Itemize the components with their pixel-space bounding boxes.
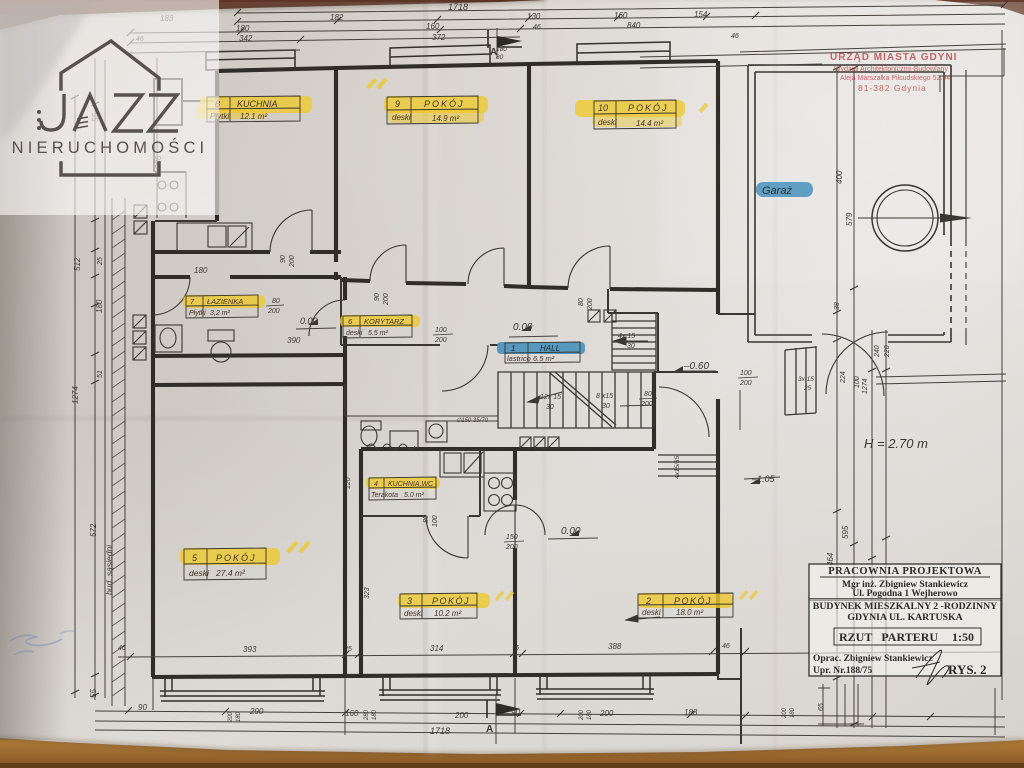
svg-text:100: 100 xyxy=(435,327,447,334)
svg-text:1718: 1718 xyxy=(430,726,450,736)
svg-text:deski: deski xyxy=(642,608,661,617)
svg-text:180: 180 xyxy=(194,266,208,275)
svg-text:30: 30 xyxy=(627,343,635,350)
svg-text:1:50: 1:50 xyxy=(952,630,974,644)
svg-text:KORYTARZ: KORYTARZ xyxy=(364,317,404,326)
svg-text:NIERUCHOMOŚCI: NIERUCHOMOŚCI xyxy=(12,138,209,157)
svg-text:14.4 m²: 14.4 m² xyxy=(636,119,663,128)
svg-text:240: 240 xyxy=(874,345,881,358)
svg-text:200: 200 xyxy=(383,293,390,306)
svg-text:4: 4 xyxy=(374,481,378,488)
svg-text:deski: deski xyxy=(189,568,210,578)
svg-text:12.1 m²: 12.1 m² xyxy=(240,112,267,121)
svg-text:Wydział Architektoniczno-Budow: Wydział Architektoniczno-Budowlany xyxy=(834,66,948,73)
svg-text:Płytki: Płytki xyxy=(189,310,206,317)
svg-text:KUCHNIA: KUCHNIA xyxy=(237,99,278,109)
svg-text:1718: 1718 xyxy=(448,2,468,12)
svg-text:200: 200 xyxy=(505,544,518,551)
svg-text:323: 323 xyxy=(364,587,371,599)
svg-text:150: 150 xyxy=(506,534,518,541)
svg-text:595: 595 xyxy=(841,525,850,539)
svg-text:81-382 Gdynia: 81-382 Gdynia xyxy=(858,83,927,93)
svg-text:deski: deski xyxy=(404,609,423,618)
svg-text:130: 130 xyxy=(527,12,541,21)
svg-text:180: 180 xyxy=(496,46,507,53)
svg-text:180: 180 xyxy=(236,24,250,33)
svg-text:1274: 1274 xyxy=(71,386,80,404)
svg-text:390: 390 xyxy=(287,336,301,345)
svg-text:372: 372 xyxy=(432,33,446,42)
svg-text:Ul. Pogodna 1 Wejherowo: Ul. Pogodna 1 Wejherowo xyxy=(852,589,957,599)
svg-text:393: 393 xyxy=(243,645,257,654)
svg-text:200: 200 xyxy=(289,255,296,268)
svg-text:–0.60: –0.60 xyxy=(683,361,709,372)
svg-text:POKÓJ: POKÓJ xyxy=(628,103,669,113)
svg-text:ŁAZIENKA: ŁAZIENKA xyxy=(207,297,243,306)
svg-text:290: 290 xyxy=(249,707,264,716)
svg-text:46: 46 xyxy=(118,645,126,652)
svg-text:Garaż: Garaż xyxy=(762,185,792,197)
svg-text:18.0 m²: 18.0 m² xyxy=(676,608,703,617)
svg-text:100: 100 xyxy=(854,376,861,388)
svg-text:840: 840 xyxy=(627,21,641,30)
svg-text:PRACOWNIA PROJEKTOWA: PRACOWNIA PROJEKTOWA xyxy=(828,566,982,577)
svg-text:200: 200 xyxy=(267,308,280,315)
svg-text:8 x15: 8 x15 xyxy=(596,393,613,400)
svg-text:A: A xyxy=(486,724,493,735)
svg-text:POKÓJ: POKÓJ xyxy=(674,596,712,606)
svg-text:BUDYNEK MIESZKALNY 2 -RODZINNY: BUDYNEK MIESZKALNY 2 -RODZINNY xyxy=(813,601,997,612)
svg-text:5.5 m²: 5.5 m² xyxy=(368,330,389,337)
svg-text:10: 10 xyxy=(598,103,608,113)
svg-text:80: 80 xyxy=(578,298,585,306)
svg-text:POKÓJ: POKÓJ xyxy=(424,99,465,109)
svg-text:80: 80 xyxy=(496,54,504,61)
svg-text:38: 38 xyxy=(834,302,841,310)
svg-text:HALL: HALL xyxy=(540,344,560,353)
svg-text:10.2 m²: 10.2 m² xyxy=(434,609,461,618)
svg-text:deski: deski xyxy=(346,330,363,337)
svg-text:200: 200 xyxy=(739,380,752,387)
svg-text:90: 90 xyxy=(511,708,520,717)
svg-text:46: 46 xyxy=(731,33,739,40)
svg-text:0.00: 0.00 xyxy=(513,322,533,333)
svg-text:30: 30 xyxy=(546,404,554,411)
svg-text:100: 100 xyxy=(432,515,439,527)
svg-text:160: 160 xyxy=(426,22,440,31)
svg-text:46: 46 xyxy=(533,24,541,31)
svg-text:0.00: 0.00 xyxy=(561,526,581,537)
svg-text:bud. sąsiedni: bud. sąsiedni xyxy=(104,544,114,595)
svg-text:lastrico: lastrico xyxy=(507,354,531,363)
svg-text:400: 400 xyxy=(835,170,844,184)
svg-text:180: 180 xyxy=(587,709,593,720)
svg-text:90: 90 xyxy=(138,703,147,712)
svg-text:65: 65 xyxy=(818,703,825,711)
svg-text:120: 120 xyxy=(345,477,352,489)
svg-text:30: 30 xyxy=(602,403,610,410)
svg-text:0.00: 0.00 xyxy=(300,316,318,326)
svg-text:deski: deski xyxy=(392,113,411,122)
svg-text:Oprac. Zbigniew Stankiewicz: Oprac. Zbigniew Stankiewicz xyxy=(813,654,933,664)
svg-text:4x15/35: 4x15/35 xyxy=(674,455,681,479)
svg-text:Aleja Marszałka Piłsudskiego 5: Aleja Marszałka Piłsudskiego 52.54 xyxy=(840,75,950,82)
svg-text:182: 182 xyxy=(330,13,344,22)
svg-text:9: 9 xyxy=(395,99,400,109)
svg-text:80: 80 xyxy=(423,515,430,523)
svg-text:200: 200 xyxy=(434,337,447,344)
svg-text:388: 388 xyxy=(608,642,622,651)
svg-text:12x 15: 12x 15 xyxy=(540,394,561,401)
svg-text:RYS. 2: RYS. 2 xyxy=(948,662,987,677)
svg-text:80: 80 xyxy=(272,298,280,305)
svg-text:90: 90 xyxy=(374,293,381,301)
svg-text:Terakota: Terakota xyxy=(371,492,398,499)
svg-text:90: 90 xyxy=(280,255,287,263)
svg-text:4x 15: 4x 15 xyxy=(618,333,635,340)
svg-text:46: 46 xyxy=(722,643,730,650)
svg-text:572: 572 xyxy=(89,523,98,537)
svg-text:3,2 m²: 3,2 m² xyxy=(210,310,231,317)
svg-text:1274: 1274 xyxy=(862,378,869,394)
svg-text:RZUT PARTERU: RZUT PARTERU xyxy=(839,630,938,644)
svg-text:51: 51 xyxy=(97,370,104,378)
svg-text:2: 2 xyxy=(645,596,651,606)
svg-text:180: 180 xyxy=(236,711,242,722)
svg-text:–1.05: –1.05 xyxy=(751,474,776,484)
svg-text:180: 180 xyxy=(372,709,378,720)
svg-text:280: 280 xyxy=(364,709,370,721)
svg-text:3x 15: 3x 15 xyxy=(798,376,814,383)
svg-text:POKÓJ: POKÓJ xyxy=(216,553,257,563)
svg-text:512: 512 xyxy=(73,257,82,271)
svg-text:deski: deski xyxy=(598,118,617,127)
svg-text:55: 55 xyxy=(89,689,98,698)
svg-text:1: 1 xyxy=(511,344,515,353)
svg-text:314: 314 xyxy=(430,644,444,653)
svg-text:14.9 m²: 14.9 m² xyxy=(432,114,459,123)
svg-text:224: 224 xyxy=(840,371,847,384)
svg-text:579: 579 xyxy=(845,212,854,226)
svg-text:Upr. Nr.188/75: Upr. Nr.188/75 xyxy=(813,666,872,676)
svg-text:URZĄD MIASTA GDYNI: URZĄD MIASTA GDYNI xyxy=(830,52,957,63)
svg-text:154: 154 xyxy=(694,10,708,19)
svg-text:∅150 35/70: ∅150 35/70 xyxy=(456,417,489,424)
svg-text:160: 160 xyxy=(614,11,628,20)
svg-text:200: 200 xyxy=(640,401,653,408)
svg-text:200: 200 xyxy=(587,298,594,311)
svg-text:KUCHNIA,WC: KUCHNIA,WC xyxy=(388,481,434,488)
svg-text:5.0 m²: 5.0 m² xyxy=(404,492,425,499)
svg-text:220: 220 xyxy=(884,345,891,358)
svg-text:27.4 m²: 27.4 m² xyxy=(215,568,246,578)
svg-text:6.5 m²: 6.5 m² xyxy=(533,354,555,363)
svg-text:POKÓJ: POKÓJ xyxy=(432,596,470,606)
svg-text:80: 80 xyxy=(644,391,652,398)
svg-text:3: 3 xyxy=(407,596,412,606)
svg-text:H = 2.70 m: H = 2.70 m xyxy=(864,436,928,451)
svg-text:188: 188 xyxy=(684,708,698,717)
svg-text:200: 200 xyxy=(579,709,585,721)
svg-text:200: 200 xyxy=(782,707,788,719)
svg-text:200: 200 xyxy=(599,709,614,718)
svg-text:180: 180 xyxy=(790,707,796,718)
svg-text:6: 6 xyxy=(515,645,519,652)
svg-text:25: 25 xyxy=(803,385,812,392)
svg-text:25: 25 xyxy=(343,646,352,653)
svg-text:342: 342 xyxy=(239,34,253,43)
svg-text:200: 200 xyxy=(228,711,234,723)
svg-text:GDYNIA UL. KARTUSKA: GDYNIA UL. KARTUSKA xyxy=(847,612,962,623)
svg-text:180: 180 xyxy=(95,299,104,313)
svg-text:200: 200 xyxy=(454,711,469,720)
svg-text:100: 100 xyxy=(740,370,752,377)
svg-text:160: 160 xyxy=(345,709,359,718)
svg-text:25: 25 xyxy=(97,257,104,266)
